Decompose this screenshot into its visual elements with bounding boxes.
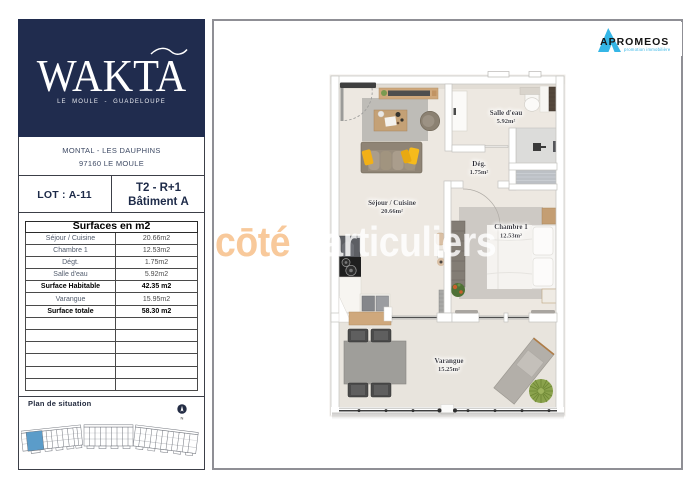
svg-text:20.66m²: 20.66m² <box>381 208 403 215</box>
svg-text:Dég.: Dég. <box>472 160 486 168</box>
svg-text:5.92m²: 5.92m² <box>497 118 516 125</box>
svg-text:12.53m²: 12.53m² <box>500 233 522 240</box>
svg-text:1.75m²: 1.75m² <box>470 169 489 176</box>
svg-text:15.25m²: 15.25m² <box>438 366 460 373</box>
svg-text:Chambre 1: Chambre 1 <box>494 223 528 231</box>
svg-text:Varangue: Varangue <box>435 357 464 365</box>
svg-text:Salle d'eau: Salle d'eau <box>490 109 523 117</box>
svg-text:Séjour / Cuisine: Séjour / Cuisine <box>368 199 416 207</box>
